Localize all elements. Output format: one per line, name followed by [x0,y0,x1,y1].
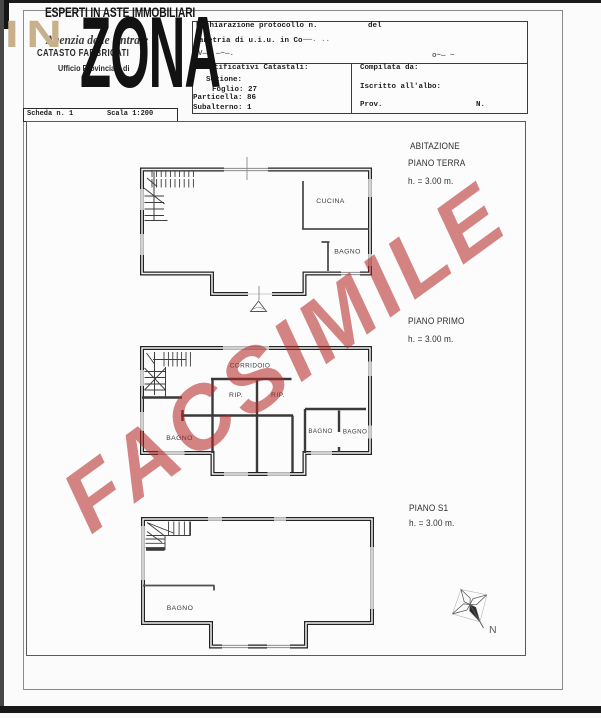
svg-text:RIP.: RIP. [271,392,285,399]
svg-text:BAGNO: BAGNO [334,249,361,256]
svg-text:N: N [489,624,497,636]
svg-text:CORRIDOIO: CORRIDOIO [230,363,271,370]
svg-text:RIP.: RIP. [229,392,243,399]
svg-text:BAGNO: BAGNO [166,435,193,442]
svg-text:CUCINA: CUCINA [316,198,345,205]
svg-text:BAGNO: BAGNO [308,428,332,435]
svg-text:BAGNO: BAGNO [343,429,367,436]
svg-text:BAGNO: BAGNO [167,605,194,612]
